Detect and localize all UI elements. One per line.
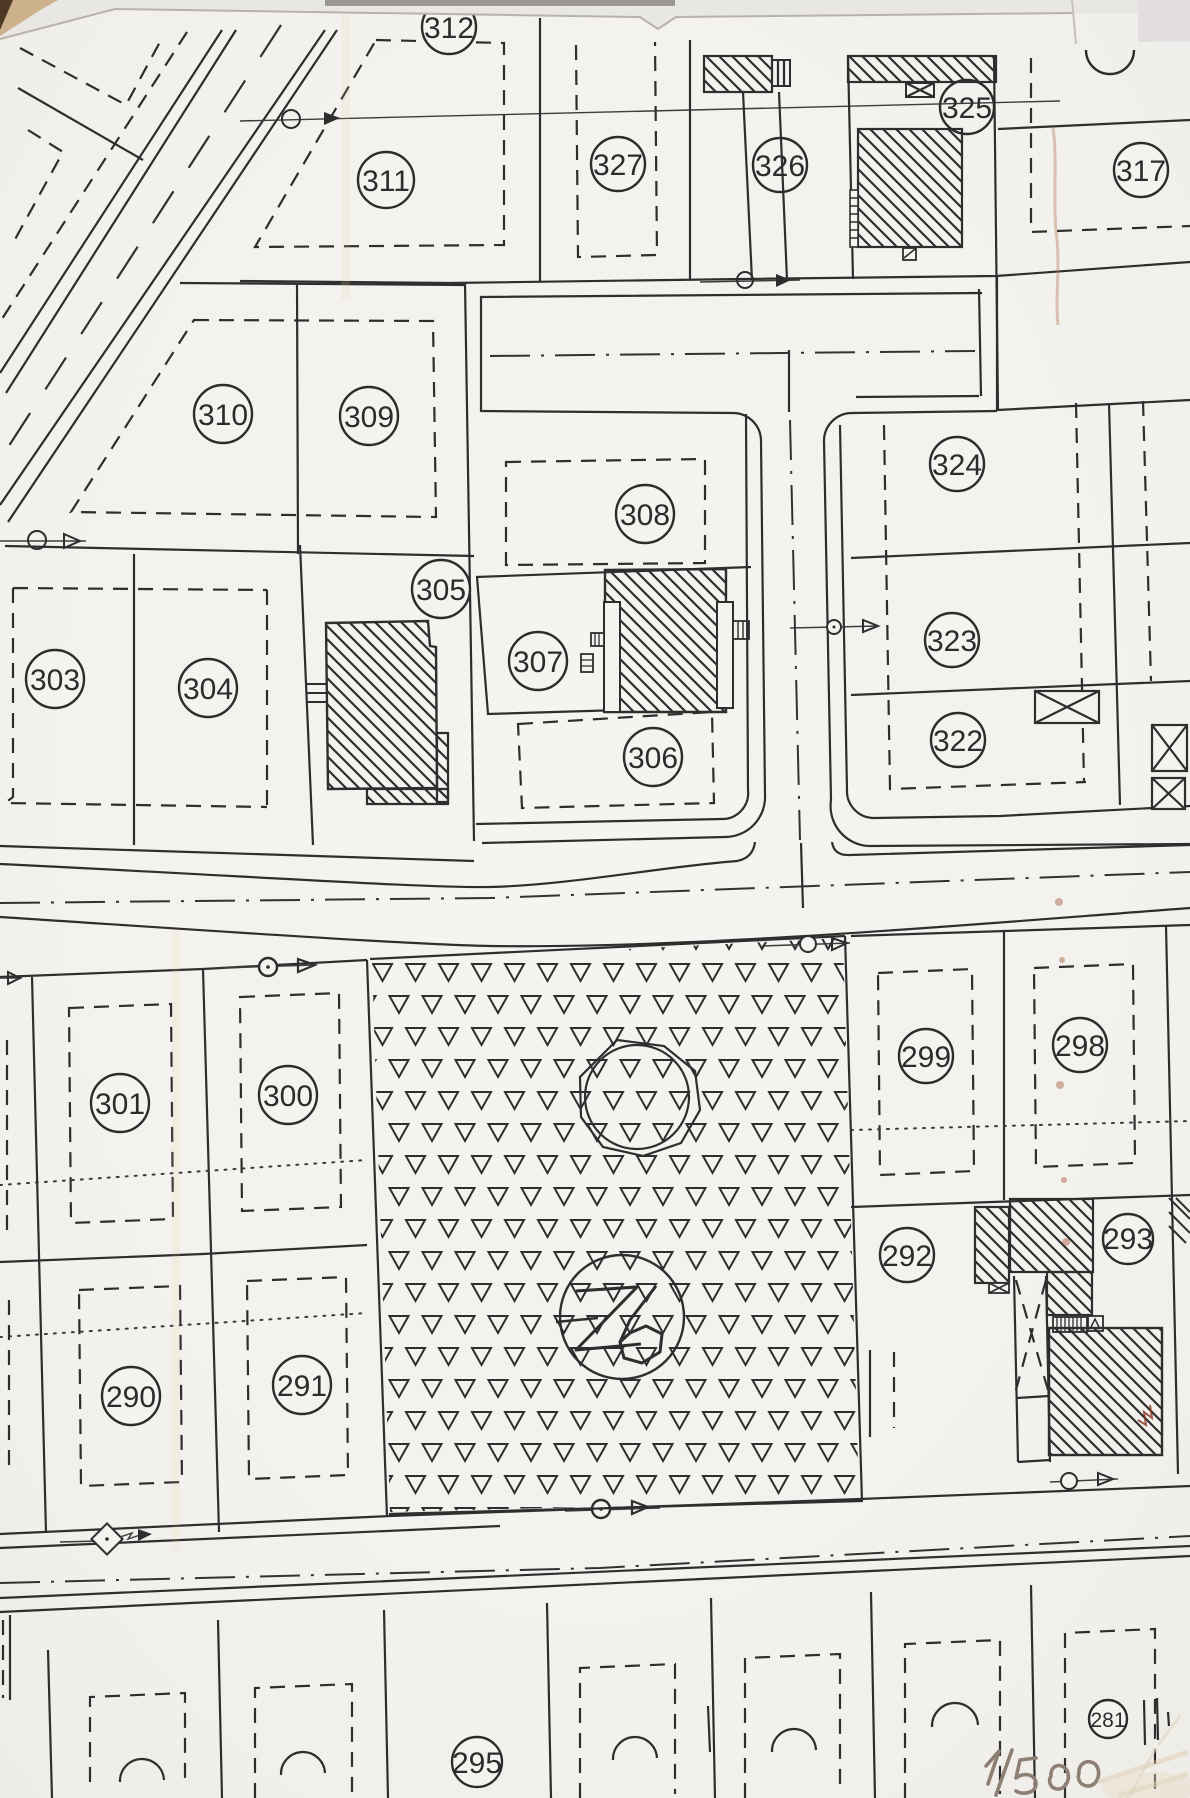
svg-text:300: 300: [263, 1080, 313, 1113]
svg-text:325: 325: [942, 92, 992, 125]
svg-text:301: 301: [95, 1088, 145, 1121]
svg-text:299: 299: [901, 1041, 951, 1074]
svg-text:295: 295: [452, 1747, 502, 1780]
svg-text:311: 311: [362, 165, 410, 198]
svg-text:327: 327: [593, 149, 643, 182]
svg-text:307: 307: [513, 646, 563, 679]
svg-text:298: 298: [1055, 1030, 1105, 1063]
svg-text:310: 310: [198, 399, 248, 432]
svg-text:290: 290: [106, 1381, 156, 1414]
svg-text:303: 303: [30, 664, 80, 697]
svg-text:308: 308: [620, 499, 670, 532]
svg-text:291: 291: [277, 1370, 327, 1403]
svg-text:281: 281: [1090, 1709, 1125, 1732]
svg-text:293: 293: [1103, 1223, 1153, 1256]
svg-text:305: 305: [416, 574, 466, 607]
svg-text:326: 326: [755, 150, 805, 183]
svg-text:306: 306: [628, 742, 678, 775]
svg-text:292: 292: [882, 1240, 932, 1273]
svg-text:324: 324: [932, 449, 982, 482]
svg-text:322: 322: [933, 725, 983, 758]
svg-text:317: 317: [1116, 155, 1166, 188]
svg-text:323: 323: [927, 625, 977, 658]
svg-text:304: 304: [183, 673, 233, 706]
svg-text:312: 312: [424, 12, 474, 45]
svg-text:309: 309: [344, 401, 394, 434]
